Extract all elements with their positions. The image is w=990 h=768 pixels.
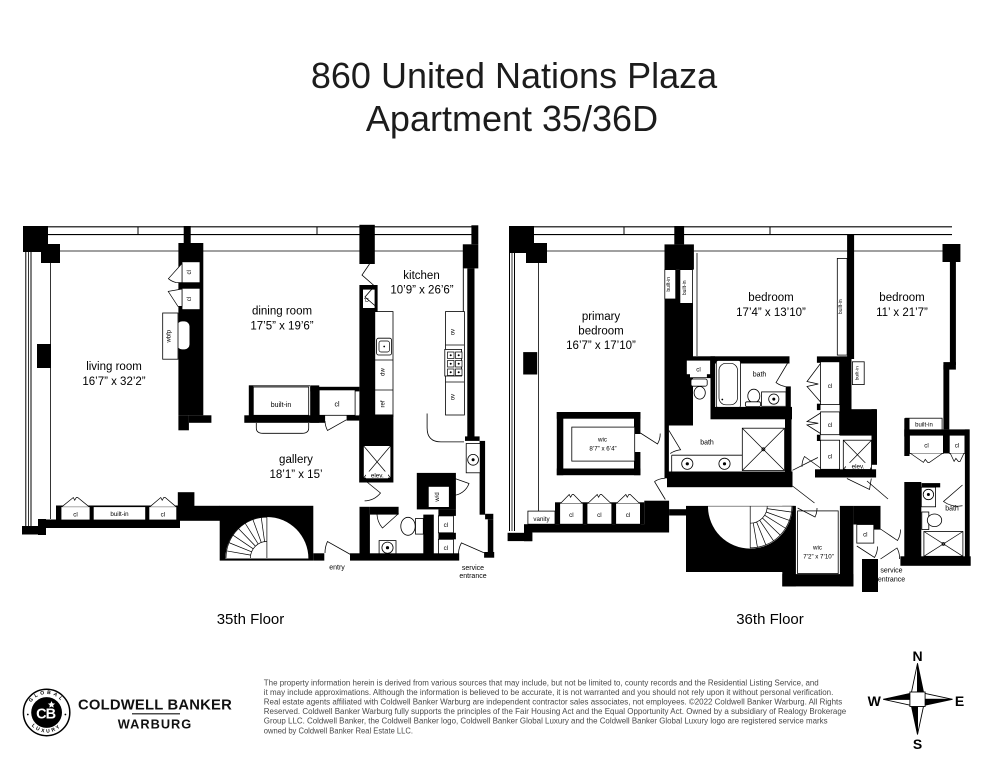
- svg-text:cl: cl: [186, 270, 193, 274]
- svg-text:vanity: vanity: [533, 516, 550, 523]
- svg-text:cl: cl: [626, 512, 630, 519]
- svg-text:bath: bath: [753, 372, 767, 379]
- svg-text:elev.: elev.: [852, 463, 865, 470]
- svg-text:cl: cl: [444, 545, 448, 552]
- svg-text:bath: bath: [945, 506, 959, 513]
- svg-text:built-in: built-in: [682, 280, 688, 295]
- svg-text:cl: cl: [696, 367, 700, 374]
- svg-text:cl: cl: [828, 383, 832, 390]
- svg-text:16’7” x 32’2”: 16’7” x 32’2”: [82, 376, 145, 388]
- svg-text:kitchen: kitchen: [403, 270, 439, 282]
- svg-text:N: N: [912, 648, 922, 664]
- svg-text:cl: cl: [955, 443, 959, 450]
- svg-text:ov: ov: [451, 394, 457, 400]
- svg-text:cl: cl: [444, 522, 448, 529]
- svg-text:cl: cl: [161, 512, 165, 519]
- svg-text:built-in: built-in: [854, 366, 860, 380]
- svg-text:bedroom: bedroom: [748, 292, 793, 304]
- svg-text:dining room: dining room: [252, 306, 312, 318]
- svg-text:dw: dw: [380, 367, 386, 375]
- svg-text:10’9” x 26’6”: 10’9” x 26’6”: [390, 285, 453, 297]
- svg-text:bedroom: bedroom: [879, 292, 924, 304]
- svg-text:cl: cl: [863, 532, 867, 539]
- svg-text:cl: cl: [186, 297, 193, 301]
- svg-text:cl: cl: [924, 443, 928, 450]
- svg-text:16’7” x 17’10”: 16’7” x 17’10”: [566, 340, 636, 352]
- svg-text:built-in: built-in: [915, 423, 933, 429]
- svg-text:it may include approximations.: it may include approximations. Although …: [264, 688, 834, 697]
- svg-text:ref: ref: [380, 400, 386, 407]
- svg-text:W: W: [868, 693, 882, 709]
- svg-text:Group LLC. Coldwell Banker, th: Group LLC. Coldwell Banker, the Coldwell…: [264, 717, 828, 726]
- svg-text:cl: cl: [828, 422, 832, 429]
- svg-text:cl: cl: [334, 402, 340, 409]
- svg-text:built-in: built-in: [110, 511, 129, 518]
- svg-text:built-in: built-in: [271, 402, 292, 409]
- svg-text:11’ x 21’7”: 11’ x 21’7”: [876, 307, 928, 319]
- svg-text:built-in: built-in: [838, 299, 844, 314]
- svg-text:service: service: [880, 568, 902, 575]
- svg-text:wbfp: wbfp: [166, 329, 172, 343]
- svg-text:Apartment 35/36D: Apartment 35/36D: [366, 98, 658, 139]
- svg-text:elev.: elev.: [371, 473, 384, 480]
- svg-text:cl: cl: [828, 454, 832, 461]
- svg-text:primary: primary: [582, 311, 621, 323]
- svg-text:cl: cl: [569, 512, 573, 519]
- svg-text:Real estate agents affiliated: Real estate agents affiliated with Coldw…: [264, 698, 842, 707]
- svg-text:COLDWELL BANKER: COLDWELL BANKER: [78, 698, 232, 714]
- svg-text:E: E: [955, 693, 964, 709]
- svg-text:Reserved. Coldwell Banker Warb: Reserved. Coldwell Banker Warburg fully …: [264, 707, 847, 716]
- svg-text:7’2” x 7’10”: 7’2” x 7’10”: [803, 554, 834, 561]
- svg-text:owned by Coldwell Banker Real: owned by Coldwell Banker Real Estate LLC…: [264, 726, 413, 735]
- svg-text:CB: CB: [36, 706, 55, 722]
- svg-text:entrance: entrance: [459, 573, 486, 580]
- svg-text:18’1” x 15’: 18’1” x 15’: [269, 469, 322, 481]
- svg-text:built-in: built-in: [666, 277, 672, 292]
- svg-text:entry: entry: [329, 565, 345, 572]
- svg-text:service: service: [462, 565, 484, 572]
- svg-text:entrance: entrance: [878, 577, 905, 584]
- svg-text:WARBURG: WARBURG: [118, 717, 193, 732]
- svg-text:wic: wic: [812, 545, 822, 552]
- svg-text:bath: bath: [700, 440, 714, 447]
- svg-text:cl: cl: [73, 512, 77, 519]
- svg-text:860 United Nations Plaza: 860 United Nations Plaza: [311, 55, 718, 96]
- svg-text:w/d: w/d: [435, 492, 441, 502]
- svg-text:8’7” x 6’4”: 8’7” x 6’4”: [589, 446, 616, 453]
- svg-text:living room: living room: [86, 361, 142, 373]
- svg-text:gallery: gallery: [279, 454, 313, 466]
- svg-text:The property information herei: The property information herein is deriv…: [264, 678, 819, 687]
- svg-text:cl: cl: [597, 512, 601, 519]
- svg-text:bedroom: bedroom: [578, 326, 623, 338]
- svg-text:17’4” x 13’10”: 17’4” x 13’10”: [736, 307, 806, 319]
- svg-text:36th Floor: 36th Floor: [736, 611, 804, 628]
- svg-text:ov: ov: [451, 329, 457, 335]
- svg-text:35th Floor: 35th Floor: [217, 611, 285, 628]
- svg-text:wic: wic: [597, 437, 607, 444]
- svg-text:17’5” x 19’6”: 17’5” x 19’6”: [250, 321, 313, 333]
- svg-text:S: S: [913, 736, 922, 752]
